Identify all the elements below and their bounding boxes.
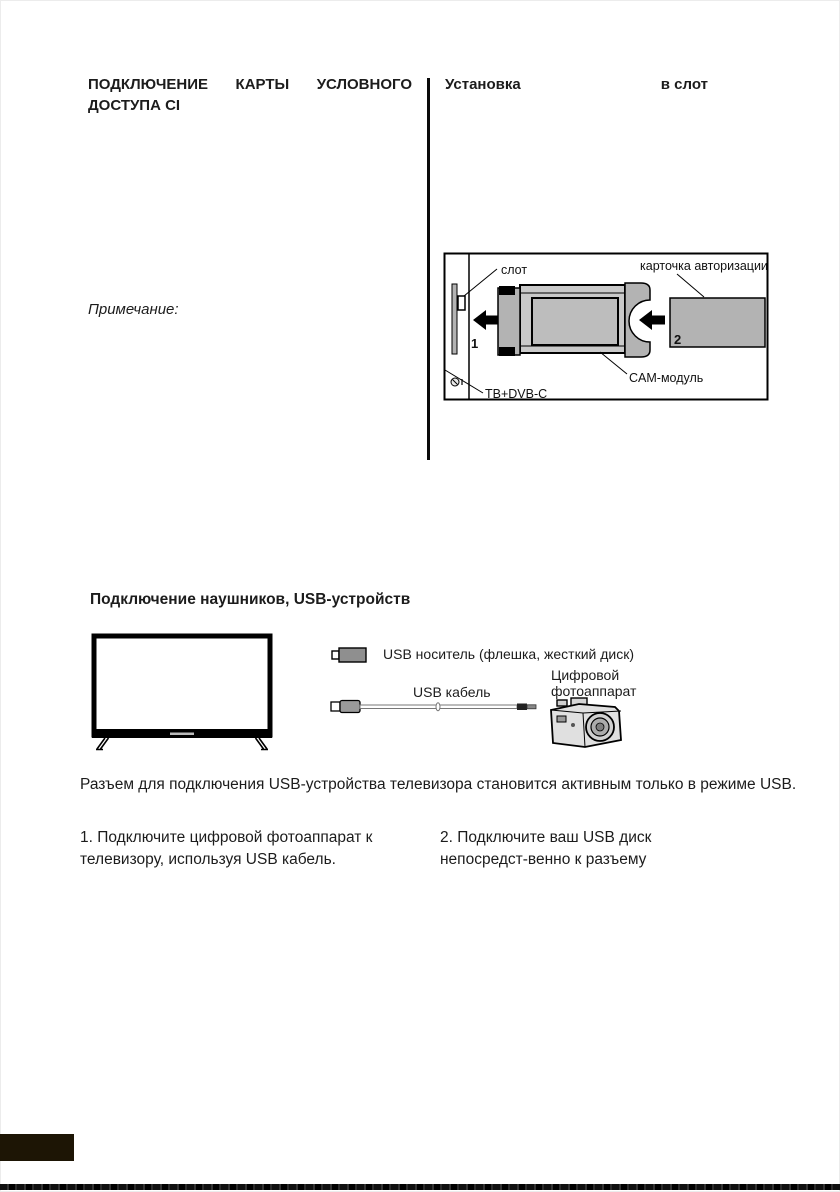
- heading-ci-line1: ПОДКЛЮЧЕНИЕ КАРТЫ УСЛОВНОГО: [88, 74, 412, 95]
- cam-module-corner-bottom: [499, 347, 515, 356]
- tv-logo: [170, 733, 194, 736]
- usb-cable-illustration: [330, 697, 542, 717]
- tv-dvbc-label: ТВ+DVB-C: [485, 387, 547, 401]
- usb-drive-icon: [331, 645, 369, 663]
- cable-plug-left: [340, 701, 360, 713]
- cable-break-mark: [436, 703, 440, 711]
- tv-leg-left: [96, 738, 109, 750]
- tv-screen: [94, 636, 270, 735]
- tv-leg-right: [256, 738, 269, 750]
- usb-step-2: 2. Подключите ваш USB диск непосредст-ве…: [440, 827, 740, 871]
- usb-step-1: 1. Подключите цифровой фотоаппарат к тел…: [80, 827, 380, 871]
- camera-lens-center: [596, 723, 604, 731]
- heading-ci-line2: ДОСТУПА CI: [88, 95, 412, 116]
- usb-drive-body: [339, 648, 366, 662]
- cable-plug-right: [517, 704, 527, 711]
- authorization-card-label: карточка авторизации: [640, 259, 768, 273]
- authorization-card: [670, 298, 765, 347]
- ci-slot-opening: [458, 296, 465, 310]
- heading-install-word2: в слот: [661, 74, 708, 95]
- heading-ci-access-card: ПОДКЛЮЧЕНИЕ КАРТЫ УСЛОВНОГО ДОСТУПА CI: [88, 74, 412, 116]
- manual-page: ПОДКЛЮЧЕНИЕ КАРТЫ УСЛОВНОГО ДОСТУПА CI У…: [0, 0, 840, 1192]
- cam-module-label: CAM-модуль: [629, 371, 703, 385]
- page-number-badge: [0, 1134, 74, 1161]
- page-edge-line: [0, 1184, 840, 1190]
- cam-module-left-cap: [498, 288, 520, 355]
- heading-usb-section: Подключение наушников, USB-устройств: [90, 591, 410, 609]
- ci-slot: [452, 284, 457, 354]
- note-label: Примечание:: [88, 301, 179, 318]
- tv-illustration: [91, 633, 273, 751]
- heading-install-in-slot: Установка в слот: [445, 74, 708, 95]
- cam-module-corner-top: [499, 286, 515, 295]
- camera-flash: [557, 716, 566, 722]
- camera-label-line1: Цифровой: [551, 667, 636, 683]
- column-divider: [427, 78, 430, 460]
- usb-drive-connector: [332, 651, 339, 659]
- cam-installation-diagram: слот ТВ+DVB-C 1 CAM-модуль 2 карточка ав…: [443, 252, 769, 401]
- step1-number: 1: [471, 336, 478, 351]
- slot-label: слот: [501, 263, 527, 277]
- step2-number: 2: [674, 332, 681, 347]
- cable-plug-right-tip: [527, 705, 536, 709]
- camera-illustration: [543, 694, 631, 750]
- cam-module-inner-panel: [532, 298, 618, 345]
- usb-drive-label: USB носитель (флешка, жесткий диск): [383, 646, 634, 662]
- heading-install-word1: Установка: [445, 74, 521, 95]
- camera-mode-dot: [571, 723, 575, 727]
- cable-plug-contact: [331, 702, 340, 711]
- usb-mode-paragraph: Разъем для подключения USB-устройства те…: [80, 774, 808, 795]
- camera-shutter-button: [557, 700, 567, 706]
